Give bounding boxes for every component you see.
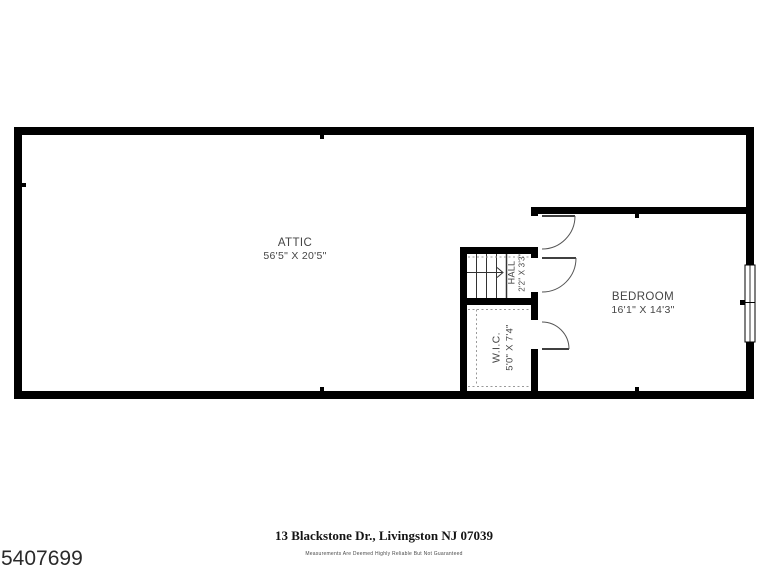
floorplan-page: ATTIC 56'5" X 20'5" BEDROOM 16'1" X 14'3…	[0, 0, 768, 576]
attic-name: ATTIC	[195, 237, 395, 250]
floorplan-drawing	[0, 0, 768, 576]
listing-number: 5407699	[1, 547, 83, 571]
hall-dimensions: 2'2" X 3'3"	[517, 248, 527, 298]
attic-to-bedroom-door	[542, 216, 575, 249]
bedroom-dimensions: 16'1" X 14'3"	[543, 304, 743, 317]
wic-dimensions: 5'0" X 7'4"	[504, 313, 517, 383]
room-attic: ATTIC 56'5" X 20'5"	[195, 237, 395, 263]
room-wic: W.I.C. 5'0" X 7'4"	[491, 313, 518, 383]
hall-to-bedroom-door	[542, 258, 576, 292]
wall-tick-marks	[22, 135, 639, 391]
room-hall: HALL 2'2" X 3'3"	[508, 248, 527, 298]
hall-name: HALL	[508, 248, 518, 298]
outer-walls	[14, 127, 754, 399]
bedroom-name: BEDROOM	[543, 291, 743, 304]
footer-disclaimer: Measurements Are Deemed Highly Reliable …	[0, 551, 768, 557]
wic-name: W.I.C.	[491, 313, 504, 383]
room-bedroom: BEDROOM 16'1" X 14'3"	[543, 291, 743, 317]
attic-dimensions: 56'5" X 20'5"	[195, 250, 395, 263]
staircase	[467, 254, 507, 298]
footer-address: 13 Blackstone Dr., Livingston NJ 07039	[0, 528, 768, 544]
wic-door	[542, 322, 569, 349]
doors	[542, 216, 576, 349]
